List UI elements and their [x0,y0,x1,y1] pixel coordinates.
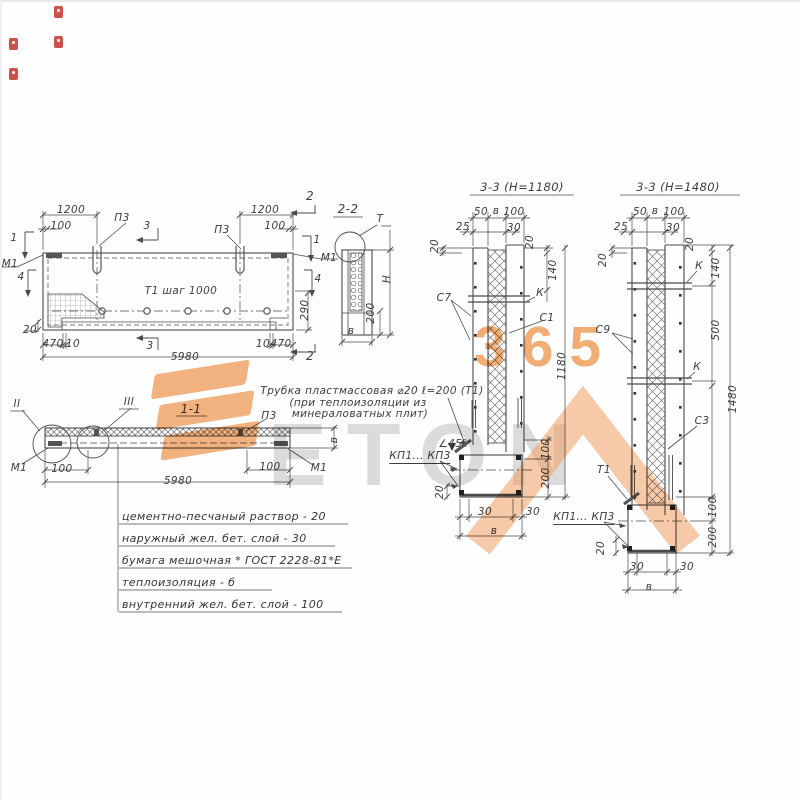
section-3-3-right-mark-k-mid: К [693,361,701,373]
section-3-3-left-dim-30-botL: 30 [478,506,492,518]
plan-dim-1200-left: 1200 [57,204,85,216]
section-3-3-left-dim-100-bot: 100 [540,438,552,459]
section-3-3-right-dim-500: 500 [710,319,722,340]
red-artifact [9,38,18,50]
plan-sec1-right: 1 [313,234,320,246]
plan-dim-100-right: 100 [264,220,285,232]
plan-sec4-right: 4 [314,273,321,285]
section-3-3-right-dim-b-top: в [652,205,659,217]
section-3-3-right-dim-100-top: 100 [663,206,684,218]
section-3-3-right-mark-k-top: К [695,260,703,272]
section-3-3-left-dim-1180: 1180 [556,352,568,380]
plan-dim-5980: 5980 [171,351,199,363]
section-1-1-title: 1-1 [181,402,202,416]
section-3-3-right-dim-200-bot: 200 [707,526,719,547]
section-3-3-right-dim-25: 25 [614,221,628,233]
section-3-3-right-dim-140: 140 [710,257,722,278]
section-1-1-mark-p3: П3 [261,410,276,422]
plan-dim-20: 20 [23,324,37,336]
section-3-3-right-dim-100-bot: 100 [707,496,719,517]
plan-dim-100-left: 100 [50,220,71,232]
spec-row-5: внутренний жел. бет. слой - 100 [122,598,324,611]
section-3-3-right-dim-30-botR: 30 [680,561,694,573]
section-1-1-detail-ii: II [14,398,21,410]
plan-dim-10-left: 10 [66,338,80,350]
spec-row-3: бумага мешочная * ГОСТ 2228-81*Е [122,554,342,567]
tube-note-line3: минераловатных плит) [292,408,428,420]
section-2-2-dim-200: 200 [365,302,377,323]
section-3-3-left-dim-20-right: 20 [524,235,536,249]
section-3-3-left-dim-30-top: 30 [507,222,521,234]
plan-dim-470-right: 470 [270,338,291,350]
red-artifact [9,68,18,80]
section-3-3-left-dim-20-left: 20 [429,239,441,253]
plan-mark-p3-left: П3 [114,212,129,224]
section-1-1-dim-b: в [328,437,340,444]
blueprint-page: цементно-песчаный раствор - 20 наружный … [0,0,800,800]
plan-sec1-left: 1 [10,232,17,244]
plan-dim-1200-right: 1200 [251,204,279,216]
section-2-2-title: 2-2 [338,202,359,216]
section-1-1-dim-100-right: 100 [259,461,280,473]
section-3-3-right-dim-20-left: 20 [597,253,609,267]
section-3-3-left-mark-k: К [536,287,544,299]
section-3-3-left-dim-200-bot: 200 [540,467,552,488]
section-3-3-left-dim-25: 25 [456,221,470,233]
red-artifact [54,6,63,18]
plan-dim-10-right: 10 [256,338,270,350]
plan-dim-470-left: 470 [42,338,63,350]
plan-mark-p3-right: П3 [214,224,229,236]
section-3-3-right-dim-30-botL: 30 [630,561,644,573]
section-3-3-left-dim-100-top: 100 [503,206,524,218]
section-3-3-right-mark-kp1-kp3: КП1... КП3 [553,511,614,525]
spec-row-4: теплоизоляция - б [122,576,235,589]
section-3-3-left-dim-50: 50 [474,206,488,218]
section-3-3-left-dim-30-botR: 30 [526,506,540,518]
section-3-3-right-dim-20-bot: 20 [595,541,607,555]
section-3-3-left-dim-140: 140 [547,259,559,280]
plan-mark-m1-right: М1 [321,252,338,264]
section-1-1-dim-5980: 5980 [164,475,192,487]
section-2-2-dim-b: в [348,325,355,337]
spec-row-1: цементно-песчаный раствор - 20 [122,510,326,523]
section-3-3-left-note-angle-45: ∠45° [438,438,468,450]
annotation-labels: цементно-песчаный раствор - 20 наружный … [0,0,800,800]
section-3-3-left-dim-b-bot: в [491,525,498,537]
plan-sec4-left: 4 [17,271,24,283]
section-3-3-left-dim-20-bot: 20 [434,485,446,499]
section-3-3-right-dim-1480: 1480 [727,385,739,413]
section-2-2-mark-t: Т [377,213,384,225]
plan-sec2-top: 2 [306,189,314,203]
section-3-3-left-title: 3-3 (Н=1180) [480,180,564,194]
section-1-1-mark-m1-right: М1 [311,462,328,474]
plan-mark-m1-left: М1 [2,258,19,270]
section-3-3-left-mark-kp1-kp3: КП1... КП3 [389,450,450,464]
section-3-3-right-dim-20-right: 20 [684,237,696,251]
section-3-3-right-mark-s3: С3 [695,415,710,427]
plan-note-t1-step: Т1 шаг 1000 [145,285,217,297]
section-3-3-left-mark-s1: С1 [540,312,555,324]
section-3-3-right-mark-s9: С9 [596,324,611,336]
section-3-3-right-dim-b-bot: в [646,581,653,593]
section-1-1-detail-iii: III [124,396,135,408]
plan-sec3-bottom: 3 [146,340,153,352]
section-2-2-dim-h: Н [381,275,393,283]
tube-note-line1: Трубка пластмассовая ⌀20 ℓ=200 (Т1) [260,385,483,397]
plan-dim-290: 290 [299,299,311,320]
section-1-1-mark-m1-left: М1 [11,462,28,474]
plan-sec2-bottom: 2 [306,349,314,363]
section-3-3-left-mark-s7: С7 [437,292,452,304]
red-artifact [54,36,63,48]
section-1-1-dim-100-left: 100 [51,463,72,475]
plan-sec3-top: 3 [143,220,150,232]
section-3-3-right-title: 3-3 (Н=1480) [636,180,720,194]
section-3-3-right-dim-30-top: 30 [666,222,680,234]
section-3-3-right-dim-50: 50 [633,206,647,218]
section-3-3-right-mark-t1: Т1 [597,464,611,476]
section-3-3-left-dim-b-top: в [493,205,500,217]
spec-row-2: наружный жел. бет. слой - 30 [122,532,307,545]
